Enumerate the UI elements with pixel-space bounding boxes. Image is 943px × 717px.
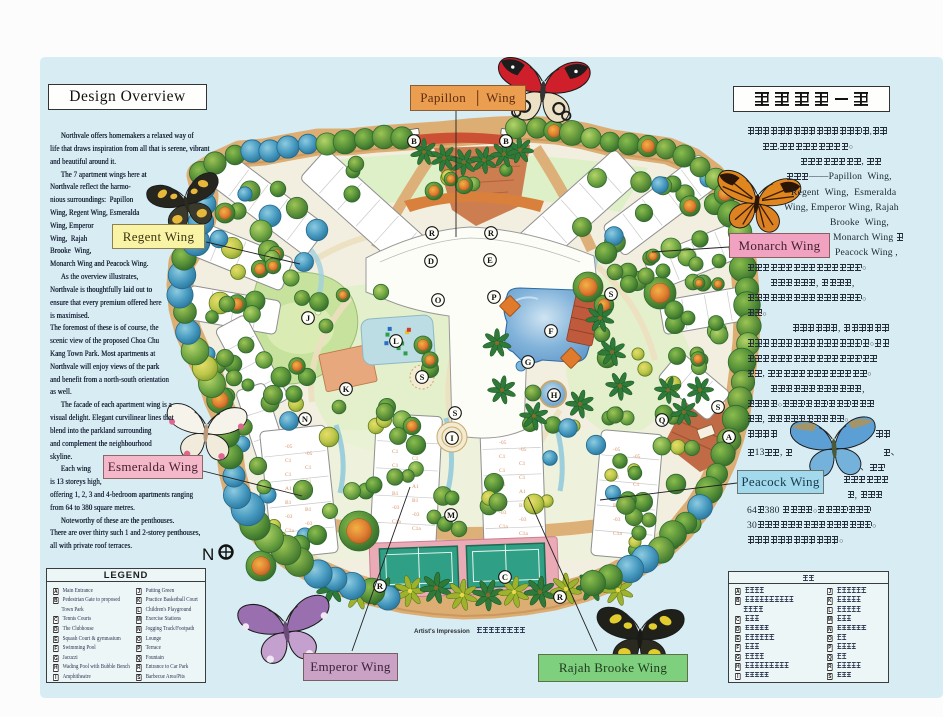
svg-text:C1: C1 [499, 468, 506, 474]
svg-text:G: G [525, 357, 532, 367]
svg-text:O: O [435, 295, 442, 305]
svg-text:S: S [420, 372, 425, 382]
svg-text:Q: Q [659, 415, 666, 425]
svg-text:C1: C1 [633, 482, 640, 488]
svg-text:N: N [302, 414, 309, 424]
svg-text:P: P [491, 292, 496, 302]
svg-text:B1: B1 [305, 507, 312, 513]
svg-text:E: E [487, 255, 493, 265]
svg-text:B1: B1 [412, 498, 419, 504]
svg-text:S: S [453, 408, 458, 418]
svg-text:L: L [393, 336, 399, 346]
svg-text:C1a: C1a [285, 528, 294, 534]
svg-text:-03: -03 [392, 505, 400, 511]
svg-text:R: R [488, 228, 495, 238]
svg-text:F: F [548, 326, 553, 336]
svg-text:B: B [411, 136, 417, 146]
svg-text:A1: A1 [519, 489, 526, 495]
svg-text:B1: B1 [285, 500, 292, 506]
svg-text:C: C [502, 572, 508, 582]
svg-text:C1a: C1a [499, 524, 508, 530]
svg-text:A: A [726, 432, 733, 442]
svg-text:M: M [447, 510, 455, 520]
svg-text:D: D [428, 256, 434, 266]
svg-text:S: S [609, 289, 614, 299]
svg-text:B1: B1 [392, 491, 399, 497]
svg-text:A1: A1 [412, 484, 419, 490]
svg-text:K: K [343, 384, 350, 394]
svg-text:-05: -05 [285, 444, 293, 450]
svg-text:S: S [716, 402, 721, 412]
svg-text:C1a: C1a [613, 531, 622, 537]
svg-text:C1: C1 [392, 463, 399, 469]
svg-text:A1: A1 [285, 486, 292, 492]
svg-text:R: R [377, 581, 384, 591]
svg-text:C1: C1 [519, 475, 526, 481]
svg-text:-03: -03 [519, 517, 527, 523]
svg-text:-05: -05 [499, 440, 507, 446]
svg-text:C1: C1 [285, 472, 292, 478]
svg-text:C1a: C1a [519, 531, 528, 537]
svg-text:C1: C1 [519, 461, 526, 467]
svg-text:C1: C1 [305, 465, 312, 471]
svg-text:-05: -05 [519, 447, 527, 453]
svg-text:-03: -03 [412, 512, 420, 518]
svg-text:H: H [551, 390, 558, 400]
svg-text:C1a: C1a [412, 526, 421, 532]
svg-text:-05: -05 [633, 454, 641, 460]
svg-text:-03: -03 [613, 517, 621, 523]
svg-text:C1: C1 [412, 456, 419, 462]
svg-text:-03: -03 [305, 521, 313, 527]
svg-text:-03: -03 [285, 514, 293, 520]
svg-text:N: N [202, 545, 214, 564]
svg-text:R: R [429, 228, 436, 238]
svg-text:C1: C1 [392, 449, 399, 455]
svg-text:C1: C1 [285, 458, 292, 464]
svg-text:R: R [557, 592, 564, 602]
svg-text:-05: -05 [613, 447, 621, 453]
svg-text:B: B [503, 136, 509, 146]
svg-text:-05: -05 [305, 451, 313, 457]
svg-text:C1: C1 [499, 454, 506, 460]
